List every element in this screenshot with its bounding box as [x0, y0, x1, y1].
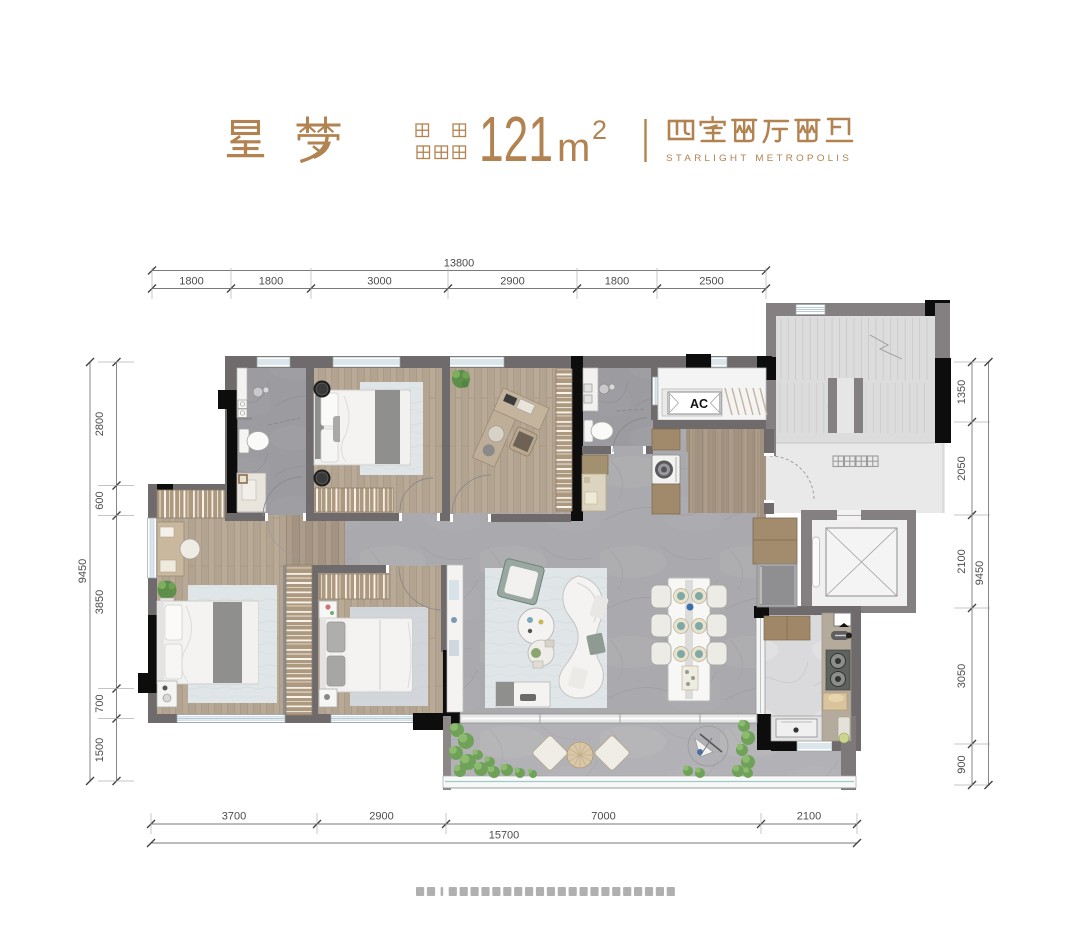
svg-text:1500: 1500 [94, 738, 106, 762]
svg-text:9450: 9450 [77, 559, 89, 583]
svg-text:STARLIGHT METROPOLIS: STARLIGHT METROPOLIS [666, 153, 852, 164]
svg-text:1350: 1350 [956, 380, 968, 404]
svg-text:9450: 9450 [974, 561, 986, 585]
svg-text:2100: 2100 [797, 811, 821, 823]
svg-text:121: 121 [479, 103, 553, 175]
svg-text:7000: 7000 [591, 811, 615, 823]
svg-text:2900: 2900 [500, 276, 524, 288]
svg-text:1800: 1800 [259, 276, 283, 288]
svg-text:3850: 3850 [94, 590, 106, 614]
svg-text:3050: 3050 [956, 664, 968, 688]
svg-text:2: 2 [592, 115, 607, 145]
svg-text:2800: 2800 [94, 412, 106, 436]
svg-text:2050: 2050 [956, 456, 968, 480]
svg-text:1800: 1800 [605, 276, 629, 288]
svg-text:3700: 3700 [222, 811, 246, 823]
svg-text:2900: 2900 [369, 811, 393, 823]
svg-text:3000: 3000 [367, 276, 391, 288]
svg-text:900: 900 [956, 755, 968, 773]
svg-text:m: m [557, 126, 590, 170]
svg-text:2100: 2100 [956, 549, 968, 573]
svg-text:15700: 15700 [489, 830, 520, 842]
svg-text:1800: 1800 [179, 276, 203, 288]
svg-text:13800: 13800 [444, 258, 475, 270]
svg-text:700: 700 [94, 694, 106, 712]
svg-text:AC: AC [690, 397, 708, 411]
svg-text:600: 600 [94, 491, 106, 509]
svg-text:2500: 2500 [699, 276, 723, 288]
